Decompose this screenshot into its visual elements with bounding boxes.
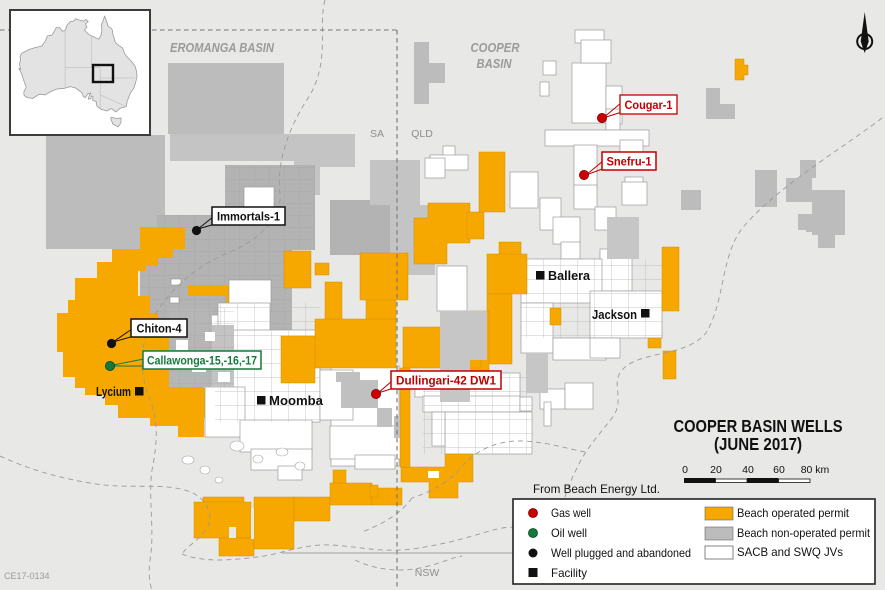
- svg-text:80 km: 80 km: [801, 464, 830, 476]
- svg-text:Facility: Facility: [551, 567, 587, 580]
- svg-text:(JUNE 2017): (JUNE 2017): [714, 434, 802, 454]
- svg-text:CE17-0134: CE17-0134: [4, 571, 50, 581]
- svg-text:NSW: NSW: [415, 567, 440, 579]
- svg-text:Beach operated permit: Beach operated permit: [737, 507, 850, 520]
- svg-text:COOPER BASIN WELLS: COOPER BASIN WELLS: [674, 416, 843, 436]
- svg-text:40: 40: [742, 464, 754, 476]
- svg-text:20: 20: [710, 464, 722, 476]
- svg-text:Cougar-1: Cougar-1: [625, 100, 674, 112]
- svg-text:Snefru-1: Snefru-1: [607, 157, 653, 169]
- svg-text:Jackson: Jackson: [592, 308, 637, 322]
- svg-text:Dullingari-42 DW1: Dullingari-42 DW1: [396, 376, 497, 388]
- svg-text:BASIN: BASIN: [477, 57, 513, 71]
- svg-text:SA: SA: [370, 128, 384, 140]
- svg-text:Ballera: Ballera: [548, 269, 591, 283]
- svg-text:60: 60: [773, 464, 785, 476]
- svg-text:Gas well: Gas well: [551, 507, 591, 520]
- svg-text:Moomba: Moomba: [269, 393, 324, 408]
- svg-text:Chiton-4: Chiton-4: [137, 324, 183, 336]
- svg-text:SACB and SWQ JVs: SACB and SWQ JVs: [737, 546, 843, 559]
- svg-text:Oil well: Oil well: [551, 527, 587, 540]
- svg-text:Callawonga-15,-16,-17: Callawonga-15,-16,-17: [147, 356, 257, 368]
- svg-text:Immortals-1: Immortals-1: [217, 212, 281, 224]
- svg-text:From Beach Energy Ltd.: From Beach Energy Ltd.: [533, 482, 660, 496]
- svg-text:Well plugged and abandoned: Well plugged and abandoned: [551, 547, 691, 560]
- svg-text:COOPER: COOPER: [471, 41, 520, 55]
- svg-text:EROMANGA BASIN: EROMANGA BASIN: [170, 40, 275, 55]
- svg-text:QLD: QLD: [411, 128, 433, 140]
- svg-text:Lycium: Lycium: [96, 385, 131, 399]
- svg-text:0: 0: [682, 464, 688, 476]
- svg-text:Beach non-operated permit: Beach non-operated permit: [737, 527, 871, 540]
